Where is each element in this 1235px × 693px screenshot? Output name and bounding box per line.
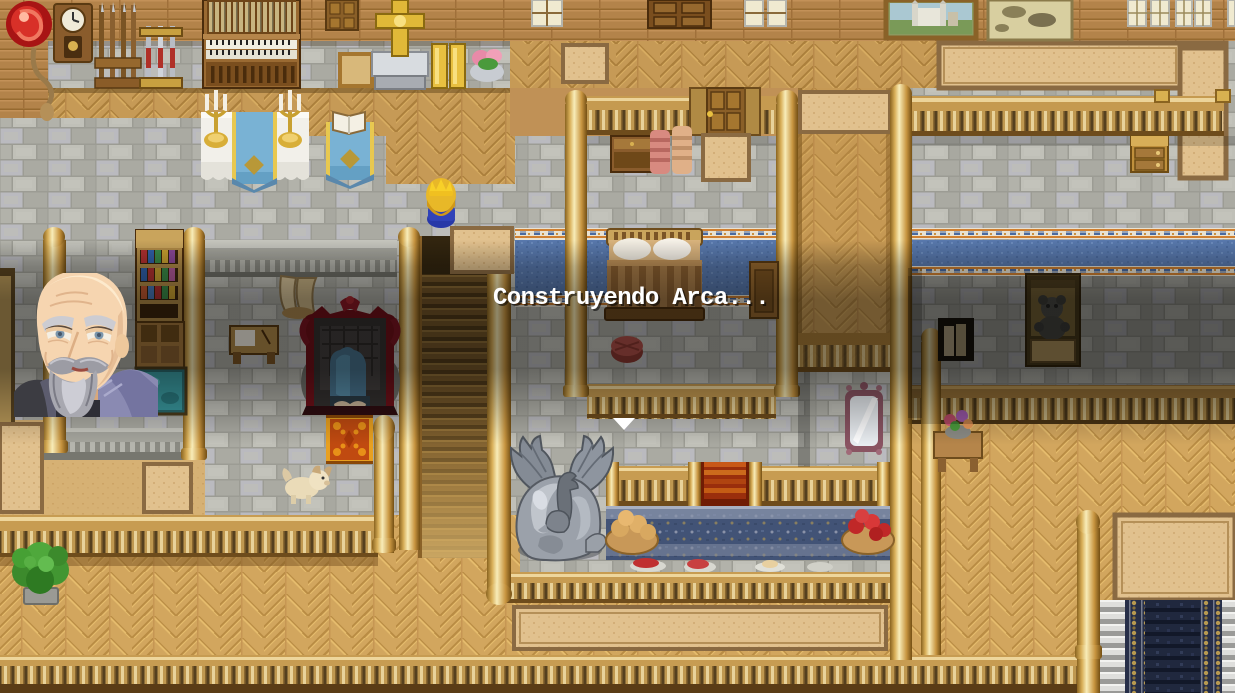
svg-text:Construyendo Arca...: Construyendo Arca... — [493, 285, 769, 312]
